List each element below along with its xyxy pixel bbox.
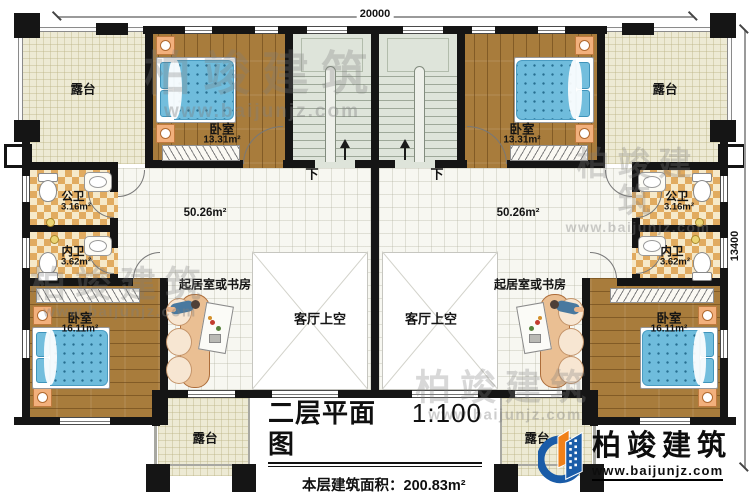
window	[412, 390, 478, 398]
sofa-cushion	[558, 328, 584, 356]
floor-area-row: 本层建筑面积：200.83m²	[268, 474, 482, 495]
room-area-label: 13.31m²	[203, 135, 240, 146]
window	[472, 26, 495, 34]
room-label-balcony: 露台	[652, 79, 677, 98]
desk-plant	[538, 316, 542, 320]
bed-mattress	[516, 60, 576, 120]
plan-scale: 1:100	[412, 398, 482, 429]
wall-segment	[375, 390, 412, 398]
sink-basin-icon	[643, 240, 661, 252]
hall-area-label: 50.26m²	[497, 207, 540, 219]
balcony-rail	[500, 398, 502, 466]
desk-item	[529, 334, 541, 343]
wall-segment	[590, 390, 598, 426]
window	[538, 26, 565, 34]
person-arm	[574, 307, 584, 312]
wall-segment	[375, 26, 403, 34]
dimension-label-top: 20000	[357, 8, 394, 20]
light-icon	[695, 218, 704, 227]
wall-segment	[457, 26, 465, 168]
room-area-label: 3.62m²	[61, 257, 91, 268]
wall-segment	[582, 278, 590, 425]
room-area-label: 16.11m²	[62, 324, 99, 335]
room-label-study: 起居室或书房	[494, 276, 566, 293]
wall-segment	[597, 26, 605, 168]
toilet-icon	[693, 252, 711, 274]
plan-title-row: 二层平面图 1:100	[268, 398, 482, 460]
title-underline	[268, 466, 482, 467]
dimension-label-right: 13400	[729, 228, 741, 265]
column	[622, 23, 654, 35]
hall-area-label: 50.26m²	[184, 207, 227, 219]
window	[640, 417, 690, 425]
stairs-down-label: 下	[430, 164, 443, 183]
room-area-label: 3.16m²	[61, 202, 91, 213]
room-area-label: 3.62m²	[660, 257, 690, 268]
room-label-void: 客厅上空	[294, 309, 346, 328]
balcony-parapet	[727, 32, 732, 122]
room-label-balcony: 露台	[70, 79, 95, 98]
nightstand-lamp	[579, 128, 590, 139]
desk-plant	[529, 326, 534, 331]
bed-blanket	[568, 59, 582, 119]
room-area-label: 13.31m²	[503, 135, 540, 146]
wall-segment	[562, 390, 582, 398]
toilet-icon	[693, 180, 711, 202]
wall-segment	[507, 160, 605, 168]
floor-area-label: 本层建筑面积：	[302, 478, 404, 494]
room-label-balcony: 露台	[192, 428, 217, 447]
window	[720, 330, 728, 358]
wardrobe	[610, 288, 714, 303]
stair-direction-arrow	[400, 139, 410, 148]
room-area-label: 3.16m²	[664, 202, 694, 213]
floor-area-value: 200.83m²	[404, 478, 466, 494]
room-label-study: 起居室或书房	[179, 276, 251, 293]
stairs-down-label: 下	[305, 164, 318, 183]
window	[720, 176, 728, 202]
stair-railing	[414, 66, 425, 162]
toilet-icon	[692, 272, 712, 281]
desk-plant	[535, 320, 540, 325]
sliding-door	[515, 390, 562, 398]
room-area-label: 16.11m²	[651, 324, 688, 335]
sofa-cushion	[558, 356, 584, 384]
person-head	[550, 300, 559, 309]
title-block: 二层平面图 1:100 本层建筑面积：200.83m² 层高：3.2m	[268, 398, 482, 496]
light-icon	[691, 235, 700, 244]
company-name: 柏竣建筑	[592, 431, 750, 461]
column	[494, 464, 518, 492]
sink-basin-icon	[643, 176, 661, 188]
wall-segment	[720, 358, 728, 425]
bed-mattress	[642, 330, 700, 386]
plan-title: 二层平面图	[268, 398, 400, 460]
company-logo-text: 柏竣建筑 www.baijunjz.com	[592, 431, 750, 481]
bed-blanket	[693, 329, 706, 385]
wall-segment	[495, 26, 538, 34]
nightstand-lamp	[579, 40, 590, 51]
room-label-void: 客厅上空	[405, 309, 457, 328]
window	[403, 26, 443, 34]
wardrobe	[510, 145, 588, 161]
wall-segment	[690, 417, 736, 425]
title-underline	[268, 462, 482, 464]
dimension-line-right	[744, 30, 746, 468]
wall-segment	[632, 162, 728, 170]
window	[720, 238, 728, 268]
company-website: www.baijunjz.com	[592, 463, 723, 481]
nightstand-lamp	[702, 392, 713, 403]
nightstand-lamp	[702, 310, 713, 321]
wall-segment	[632, 225, 728, 232]
column	[710, 13, 736, 38]
column	[710, 120, 736, 142]
wall-segment	[720, 140, 728, 176]
wall-segment	[720, 202, 728, 238]
wall-segment	[478, 390, 515, 398]
company-logo-icon	[538, 422, 590, 488]
floor-plan-canvas: 柏竣建筑 www.baijunjz.com 柏竣建筑 www.baijunjz.…	[0, 0, 750, 496]
stair-direction-arrow	[404, 147, 406, 160]
